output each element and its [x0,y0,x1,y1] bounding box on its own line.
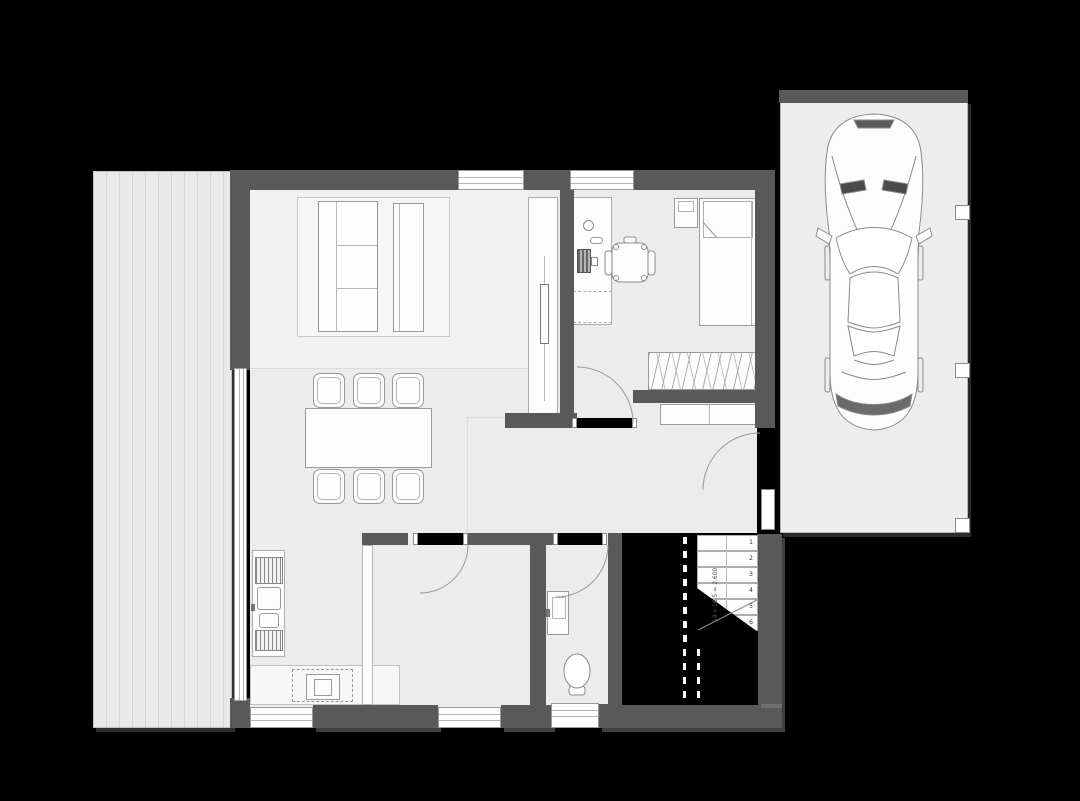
stair-step: 1 [697,535,758,551]
floor-zone-line [467,417,505,418]
bedroom-door-threshold [577,418,632,428]
sofa-seat-line [336,245,377,246]
wall-bottom-b [501,705,552,728]
sofa-back-line [336,202,337,331]
wall-bottom-c [599,704,782,728]
stair-dimension-label: 18 x 18.5 = 2.600 [712,544,722,622]
stair-step-number: 1 [749,540,753,546]
bathroom-vanity [547,591,569,635]
window-bathroom [551,703,599,728]
kitchen-sink [257,587,281,610]
wall-bedroom-south [633,390,757,403]
kitchen-appliance [255,557,283,584]
stair-wall-below-dashed [697,649,700,703]
wardrobe [648,352,757,390]
nightstand [674,198,698,228]
monitor-stand [591,257,598,266]
kitchen-faucet [251,604,255,611]
wall-left-lower [230,698,250,728]
wall-bedroom-west [560,188,574,418]
stair-railing-dashed [683,537,687,645]
window-top-2 [570,170,634,190]
bed-edge-line [751,201,752,325]
wall-left-upper [230,170,250,370]
vanity-basin [552,597,566,619]
sofa-seat-line [336,288,377,289]
dining-table [305,408,432,468]
tv-sideboard [528,197,558,414]
sofa [318,201,378,332]
dining-stool [313,373,345,408]
sideboard-divider [709,405,710,424]
kitchen-appliance [255,630,283,651]
stair-step-number: 3 [749,572,753,578]
desk-dash-line [573,322,612,323]
desk-dash-line [573,291,612,292]
dining-stool [353,373,385,408]
wall-east-bedroom [755,170,775,428]
garage-floor [780,100,968,533]
wall-south-a [362,533,408,545]
stair-step-number: 4 [749,588,753,594]
window-bottom-1 [250,707,313,728]
stair-step-number: 6 [749,620,753,626]
stair-wall-below-dashed [683,649,686,703]
daybed [393,203,424,332]
hall-sideboard [660,404,756,425]
wall-south-b [468,533,553,545]
wall-bottom-a [313,705,438,728]
dining-stool [392,469,424,504]
door-jamb [413,533,418,545]
garage-roof-post [955,363,970,378]
window-top-1 [458,170,524,190]
deck [93,171,232,728]
wall-hall-stub [505,413,577,428]
kitchen-sink-small [259,613,279,628]
wall-utility-bath [530,545,546,705]
desk-tray [590,237,603,244]
sliding-glass-door-west [234,368,247,701]
door-jamb [632,418,637,428]
stair-step-number: 5 [749,604,753,610]
daybed-line [399,204,400,331]
fireplace-stove-inner [314,679,332,696]
door-jamb [463,533,468,545]
wall-east-stair [758,534,782,704]
desk-monitor [577,249,591,273]
wall-bath-east [608,533,622,705]
dining-stool [353,469,385,504]
window-bottom-2 [438,707,501,728]
entrance-door-leaf [761,489,775,530]
dining-stool [313,469,345,504]
bath-door-threshold [558,533,602,545]
stair-step-number: 2 [749,556,753,562]
door-jamb [553,533,558,545]
garage-top-wall [779,90,968,103]
nightstand-top [678,201,694,212]
stair-step: 2 [697,551,758,567]
floor-zone-line [250,368,528,369]
bed [699,198,757,326]
floor-plan: 1 2 3 4 5 6 18 x 18.5 = 2.600 [0,0,1080,801]
tv-screen [540,284,549,344]
utility-door-threshold [418,533,463,545]
garage-roof-post [955,205,970,220]
door-jamb [602,533,607,545]
floor-zone-line [467,417,468,533]
utility-west-wall [362,545,373,705]
pillow [703,201,753,238]
garage-roof-post [955,518,970,533]
door-jamb [572,418,577,428]
stair-step: 3 [697,567,758,583]
dining-stool [392,373,424,408]
desk-cup [583,220,594,231]
